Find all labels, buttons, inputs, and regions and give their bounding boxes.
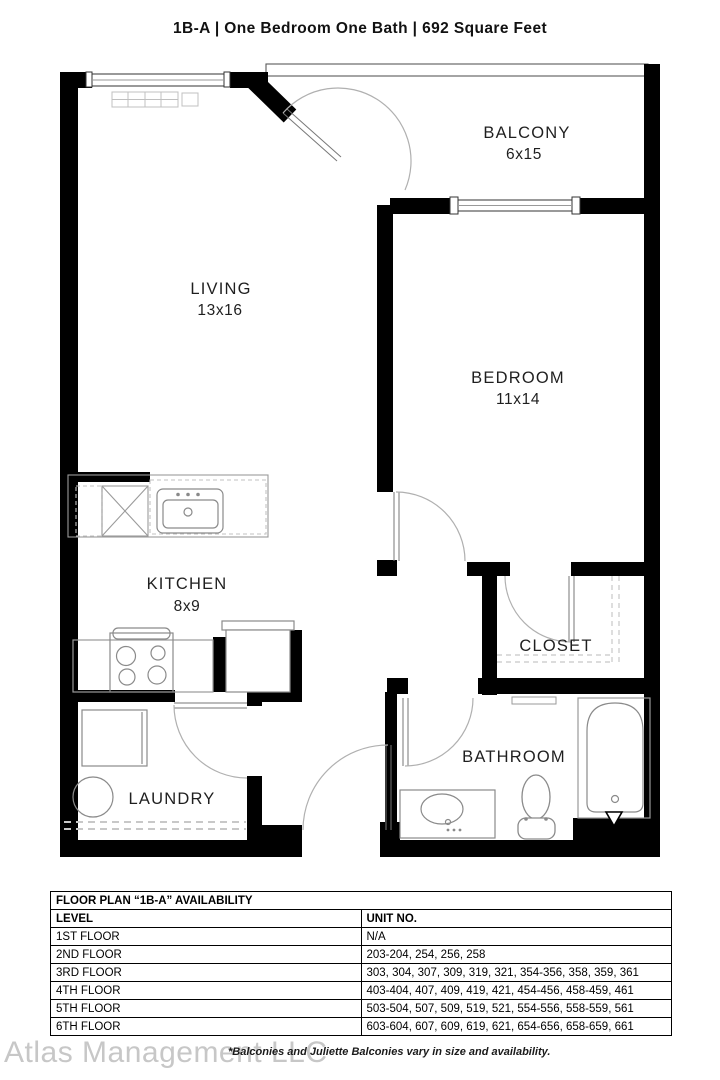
table-row: 3RD FLOOR 303, 304, 307, 309, 319, 321, … xyxy=(51,964,672,982)
table-title-row: FLOOR PLAN “1B-A” AVAILABILITY xyxy=(51,892,672,910)
laundry-bifold xyxy=(64,822,246,829)
baseboard-heater xyxy=(112,92,198,107)
room-dims-living: 13x16 xyxy=(197,302,242,319)
toilet xyxy=(518,775,555,839)
table-title: FLOOR PLAN “1B-A” AVAILABILITY xyxy=(51,892,672,910)
level-cell: 1ST FLOOR xyxy=(51,928,362,946)
room-label-bathroom: BATHROOM xyxy=(462,748,566,766)
room-dims-balcony: 6x15 xyxy=(506,146,542,163)
kitchen-sink xyxy=(157,489,223,533)
availability-table: FLOOR PLAN “1B-A” AVAILABILITY LEVEL UNI… xyxy=(50,891,672,1036)
entry-door xyxy=(303,745,391,830)
living-window xyxy=(86,72,230,87)
units-cell: 303, 304, 307, 309, 319, 321, 354-356, 3… xyxy=(361,964,672,982)
bathtub xyxy=(578,698,650,826)
balcony-disclaimer-note: *Balconies and Juliette Balconies vary i… xyxy=(228,1046,550,1058)
floor-plan-page: 1B-A | One Bedroom One Bath | 692 Square… xyxy=(0,0,720,1080)
column-header-level: LEVEL xyxy=(51,910,362,928)
bedroom-door xyxy=(394,492,465,561)
bathroom-shelf xyxy=(512,697,556,704)
table-row: 5TH FLOOR 503-504, 507, 509, 519, 521, 5… xyxy=(51,1000,672,1018)
walls xyxy=(60,64,660,857)
laundry-door xyxy=(174,703,247,778)
table-row: 2ND FLOOR 203-204, 254, 256, 258 xyxy=(51,946,672,964)
room-label-laundry: LAUNDRY xyxy=(129,790,216,808)
units-cell: 603-604, 607, 609, 619, 621, 654-656, 65… xyxy=(361,1018,672,1036)
doors xyxy=(174,88,574,830)
table-row: 1ST FLOOR N/A xyxy=(51,928,672,946)
floor-plan-drawing: LIVING 13x16 BEDROOM 11x14 BALCONY 6x15 … xyxy=(0,0,720,880)
table-row: 6TH FLOOR 603-604, 607, 609, 619, 621, 6… xyxy=(51,1018,672,1036)
room-label-kitchen: KITCHEN xyxy=(147,575,228,593)
units-cell: 403-404, 407, 409, 419, 421, 454-456, 45… xyxy=(361,982,672,1000)
room-label-balcony: BALCONY xyxy=(483,124,570,142)
room-dims-bedroom: 11x14 xyxy=(496,391,540,408)
room-dims-kitchen: 8x9 xyxy=(174,598,201,615)
balcony-door xyxy=(283,88,411,190)
level-cell: 5TH FLOOR xyxy=(51,1000,362,1018)
room-label-bedroom: BEDROOM xyxy=(471,369,565,387)
balcony-railing xyxy=(266,64,648,76)
closet-door xyxy=(505,576,574,642)
level-cell: 3RD FLOOR xyxy=(51,964,362,982)
units-cell: 503-504, 507, 509, 519, 521, 554-556, 55… xyxy=(361,1000,672,1018)
bedroom-window xyxy=(450,197,580,214)
units-cell: N/A xyxy=(361,928,672,946)
washer-dryer xyxy=(82,710,147,766)
units-cell: 203-204, 254, 256, 258 xyxy=(361,946,672,964)
room-label-closet: CLOSET xyxy=(519,637,592,655)
level-cell: 6TH FLOOR xyxy=(51,1018,362,1036)
stove xyxy=(73,628,213,692)
level-cell: 4TH FLOOR xyxy=(51,982,362,1000)
level-cell: 2ND FLOOR xyxy=(51,946,362,964)
room-label-living: LIVING xyxy=(190,280,251,298)
water-heater xyxy=(73,777,113,817)
table-header-row: LEVEL UNIT NO. xyxy=(51,910,672,928)
vanity-sink xyxy=(400,790,495,838)
table-row: 4TH FLOOR 403-404, 407, 409, 419, 421, 4… xyxy=(51,982,672,1000)
dishwasher xyxy=(102,486,148,536)
column-header-unit-no: UNIT NO. xyxy=(361,910,672,928)
refrigerator xyxy=(222,621,294,692)
